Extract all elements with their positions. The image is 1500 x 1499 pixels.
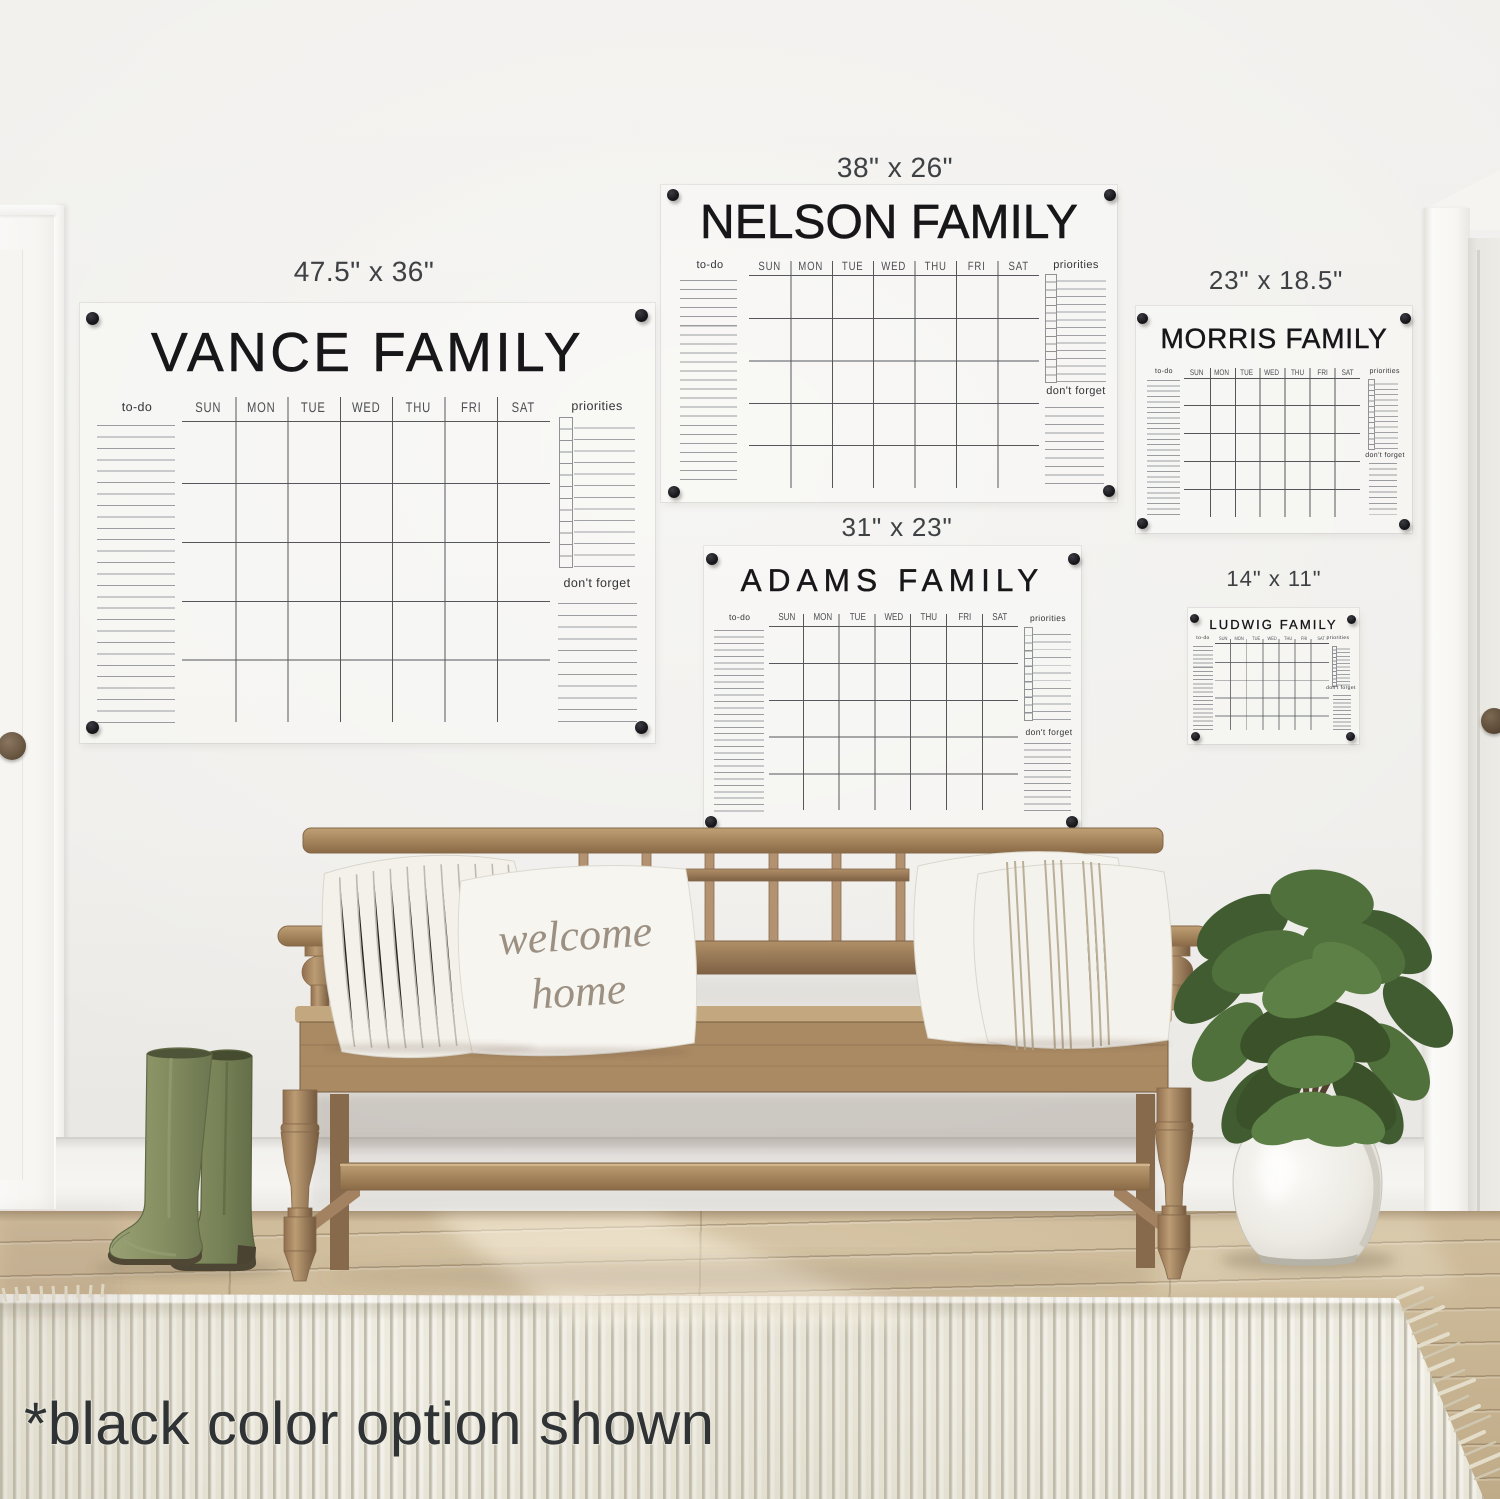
svg-text:welcome: welcome: [497, 906, 654, 964]
svg-text:home: home: [529, 964, 627, 1019]
